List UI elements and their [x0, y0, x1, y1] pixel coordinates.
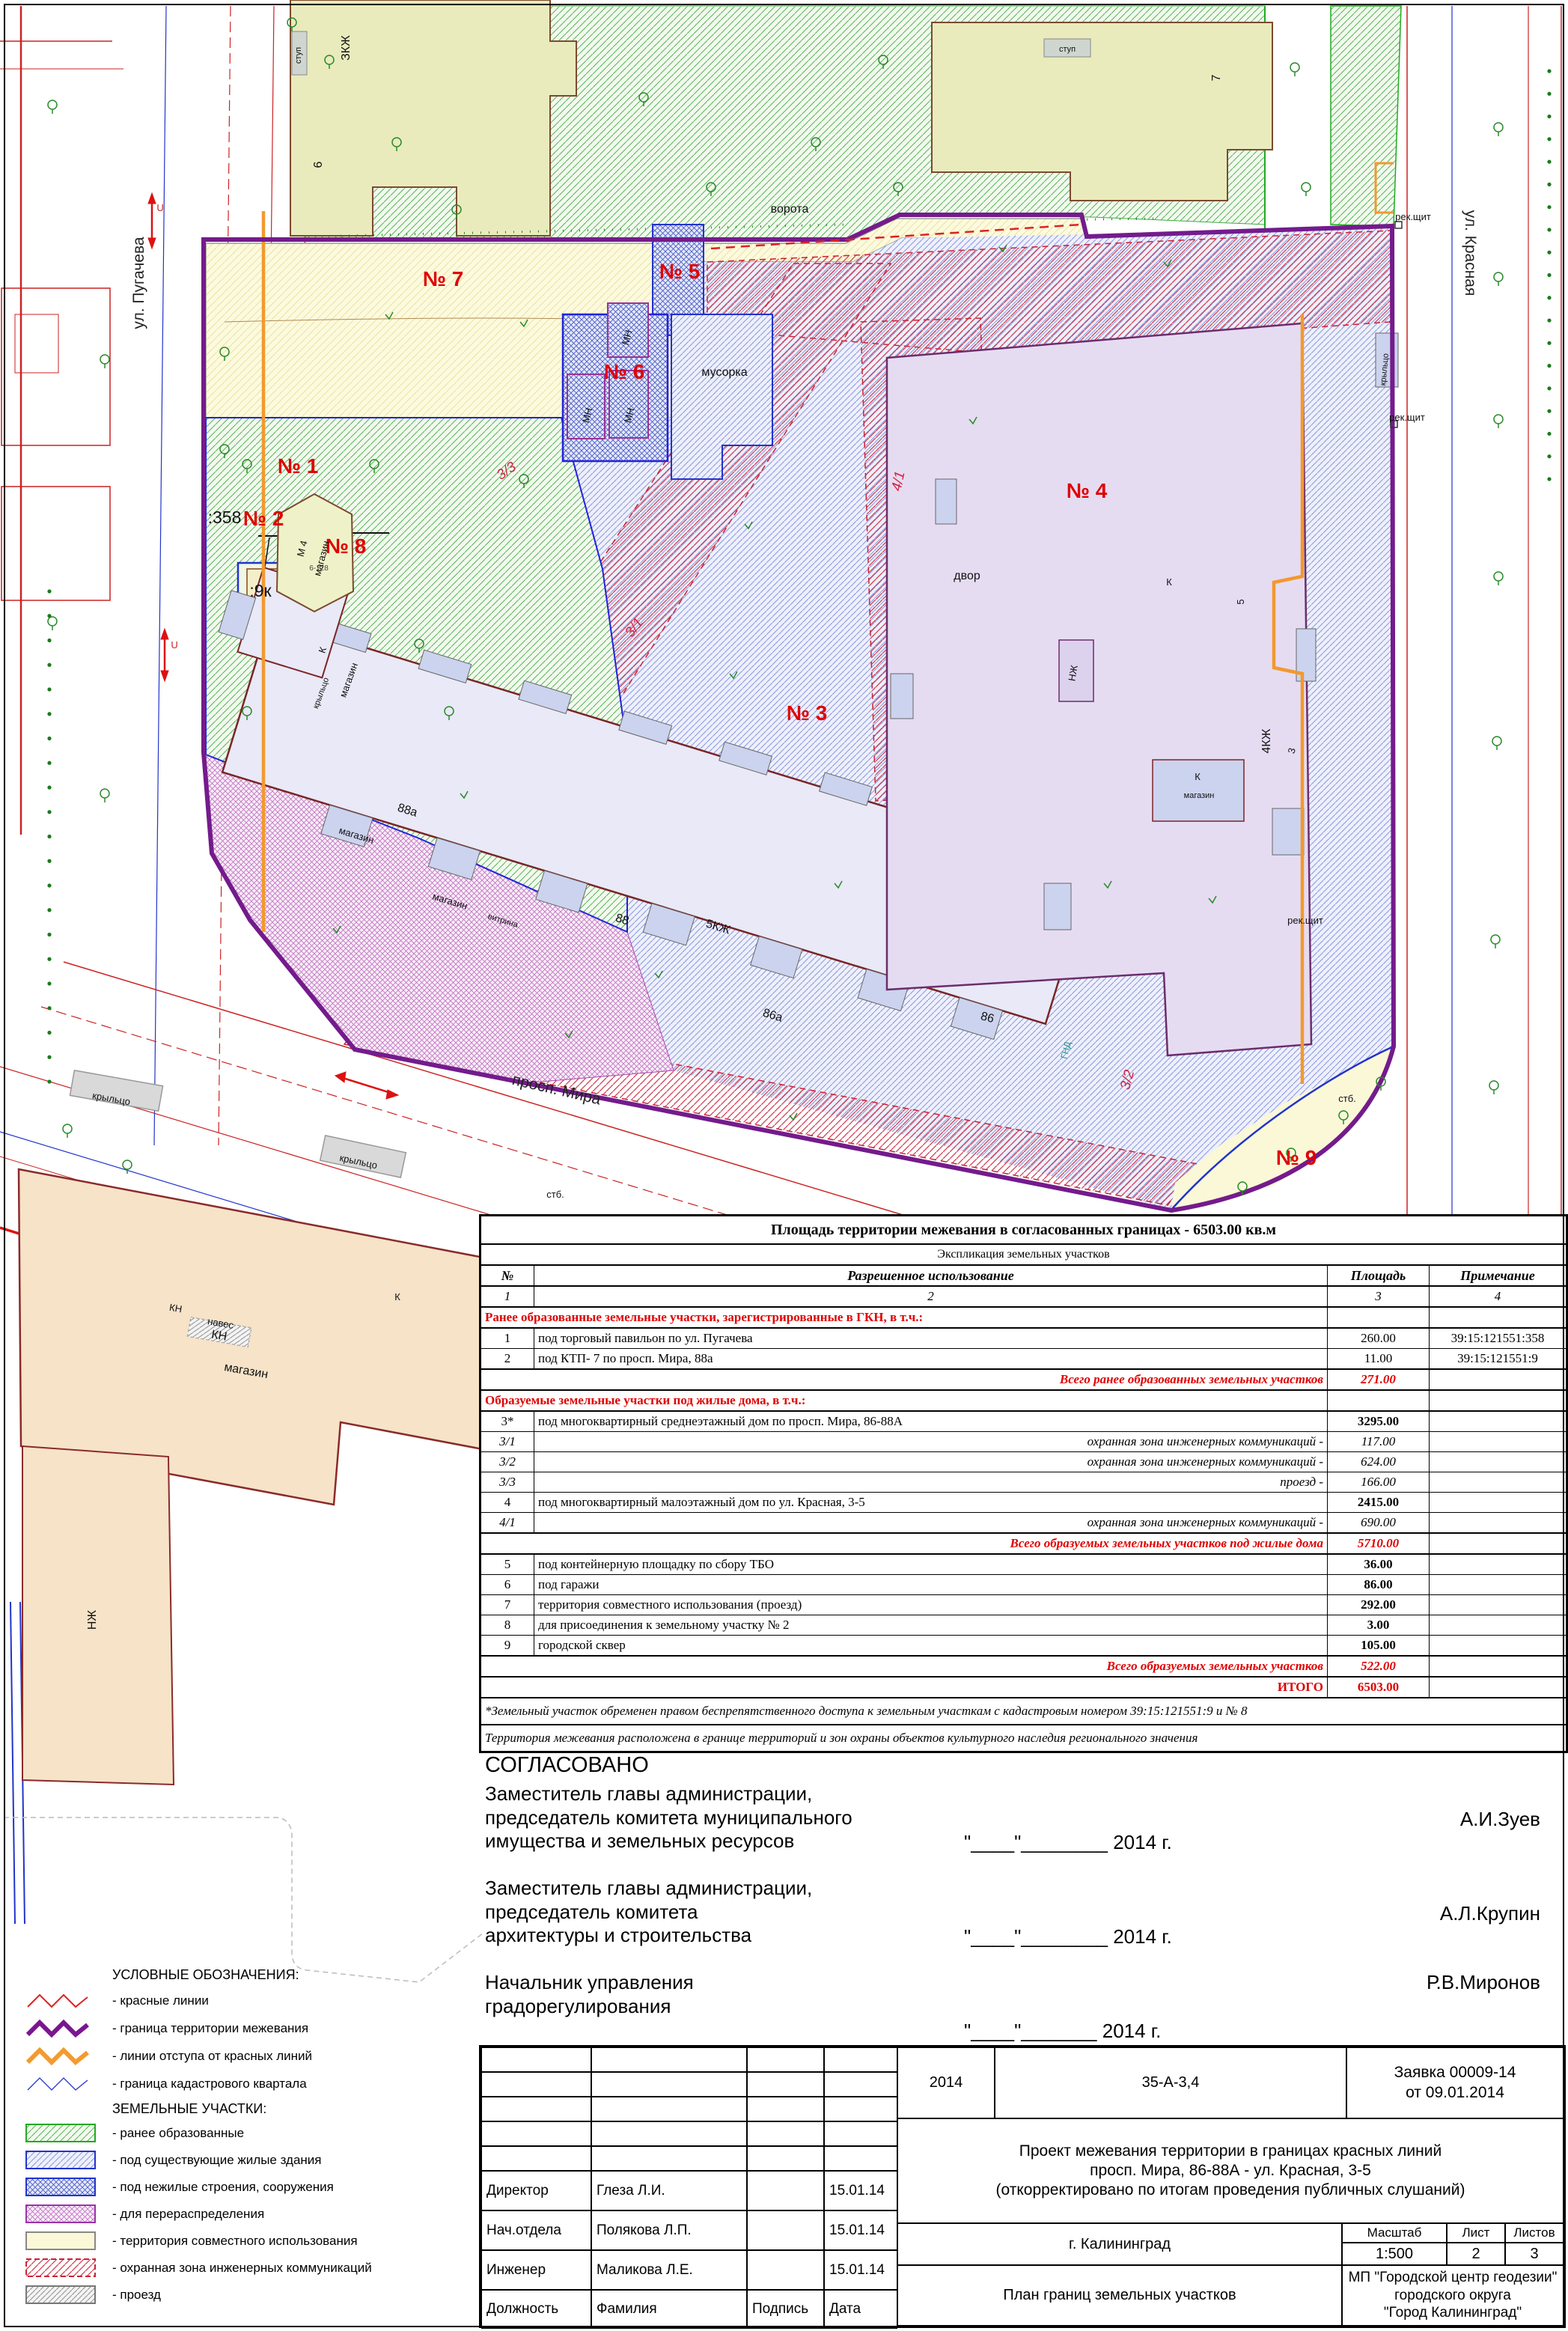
cadastral-plan-sheet: ул. Пугачевапросп. Мираул. Красная№ 1№ 2…: [0, 0, 1568, 2331]
map-label-стб: стб.: [546, 1189, 564, 1200]
map-label-рекщит: рек.щит: [1395, 211, 1431, 222]
legend-area-item-5: - охранная зона инженерных коммуникаций: [16, 2258, 477, 2278]
approval-title: Заместитель главы администрации, председ…: [485, 1782, 979, 1853]
table-row-9-16: 9городской сквер105.00: [481, 1636, 1567, 1657]
map-label-3: № 3: [787, 701, 828, 725]
map-label-4: № 4: [1067, 479, 1108, 502]
tb-request: Заявка 00009-14 от 09.01.2014: [1346, 2047, 1564, 2118]
map-label-1: № 1: [278, 454, 319, 478]
approval-item-2: Начальник управления градорегулирования"…: [485, 1971, 1563, 2043]
legend-area-item-4: - территория совместного использования: [16, 2231, 477, 2251]
tb-project: Проект межевания территории в границах к…: [897, 2118, 1564, 2223]
tb-staff-sign: [747, 2250, 824, 2290]
tb-empty-cell: [747, 2047, 824, 2072]
table-row-8-15: 8для присоединения к земельному участку …: [481, 1615, 1567, 1636]
legend-swatch-icon: [16, 2177, 105, 2197]
map-label-стб: стб.: [1338, 1093, 1356, 1104]
table-row-3/3-8: 3/3проезд -166.00: [481, 1472, 1567, 1493]
tb-empty-cell: [591, 2047, 747, 2072]
legend-line-label: - линии отступа от красных линий: [112, 2049, 312, 2064]
approval-item-0: Заместитель главы администрации, председ…: [485, 1782, 1563, 1854]
tb-empty-cell: [591, 2097, 747, 2121]
approval-name: А.Л.Крупин: [1440, 1902, 1540, 1925]
map-label-магазин: магазин: [1184, 791, 1215, 800]
map-label-рекщит: рек.щит: [1389, 412, 1425, 423]
title-block: ДиректорГлеза Л.И.15.01.14Нач.отделаПоля…: [479, 2045, 1566, 2328]
legend-zigzag-icon: [16, 2018, 105, 2039]
legend-swatch-icon: [16, 2204, 105, 2224]
legend-area-label: - ранее образованные: [112, 2126, 244, 2141]
table-row-3/1-6: 3/1охранная зона инженерных коммуникаций…: [481, 1432, 1567, 1452]
approval-date-line: "____"________ 2014 г.: [964, 1831, 1172, 1854]
legend-area-item-2: - под нежилые строения, сооружения: [16, 2177, 477, 2197]
tb-code: 35-А-3,4: [995, 2047, 1346, 2118]
tb-staff-role: Инженер: [481, 2250, 591, 2290]
map-label-358: :358: [208, 508, 242, 527]
approval-date-line: "____"_______ 2014 г.: [964, 2020, 1161, 2043]
street-krasnaya: [1407, 6, 1561, 1243]
tb-footer-1: Фамилия: [591, 2290, 747, 2329]
table-row-4-9: 4под многоквартирный малоэтажный дом по …: [481, 1493, 1567, 1513]
tb-footer-3: Дата: [824, 2290, 897, 2329]
map-label-улПугачева: ул. Пугачева: [130, 237, 147, 329]
tb-empty-cell: [824, 2072, 897, 2097]
map-label-9: № 9: [1276, 1146, 1317, 1169]
col-header-note: Примечание: [1430, 1265, 1567, 1286]
tb-staff-name: Глеза Л.И.: [591, 2171, 747, 2210]
legend-line-item-0: - красные линии: [16, 1990, 477, 2011]
tb-staff-sign: [747, 2171, 824, 2210]
map-label-2: № 2: [243, 507, 284, 530]
land-plots-table: Площадь территории межевания в согласова…: [479, 1214, 1566, 1753]
tb-empty-cell: [747, 2146, 824, 2171]
approval-section: СОГЛАСОВАНО Заместитель главы администра…: [485, 1753, 1563, 2065]
map-label-КН: КН: [168, 1302, 183, 1315]
col-header-n: №: [481, 1265, 534, 1286]
legend-line-label: - красные линии: [112, 1993, 209, 2008]
approval-name: А.И.Зуев: [1460, 1808, 1540, 1831]
map-label-К: К: [394, 1291, 400, 1302]
legend-area-item-1: - под существующие жилые здания: [16, 2150, 477, 2170]
footnote: Территория межевания расположена в грани…: [481, 1725, 1567, 1752]
table-row-total-11: Всего образуемых земельных участков под …: [481, 1533, 1567, 1554]
map-label-ступ: ступ: [1059, 45, 1076, 54]
tb-empty-cell: [481, 2047, 591, 2072]
legend-line-label: - граница территории межевания: [112, 2021, 308, 2036]
tb-empty-cell: [824, 2047, 897, 2072]
table-row-5-12: 5под контейнерную площадку по сбору ТБО3…: [481, 1554, 1567, 1575]
tb-empty-cell: [747, 2097, 824, 2121]
map-label-ступ: ступ: [294, 47, 303, 64]
tb-empty-cell: [481, 2121, 591, 2146]
table-row-7-14: 7территория совместного использования (п…: [481, 1595, 1567, 1615]
table-row-2-2: 2под КТП- 7 по просп. Мира, 88а11.0039:1…: [481, 1349, 1567, 1370]
legend-subtitle: ЗЕМЕЛЬНЫЕ УЧАСТКИ:: [112, 2101, 477, 2117]
table-row-3/2-7: 3/2охранная зона инженерных коммуникаций…: [481, 1452, 1567, 1472]
legend-area-label: - для перераспределения: [112, 2207, 264, 2222]
map-label-5: 5: [1235, 599, 1246, 604]
tb-empty-cell: [747, 2072, 824, 2097]
tb-empty-cell: [824, 2146, 897, 2171]
approval-item-1: Заместитель главы администрации, председ…: [485, 1877, 1563, 1948]
legend-line-item-3: - граница кадастрового квартала: [16, 2073, 477, 2094]
tb-empty-cell: [591, 2121, 747, 2146]
col-num-4: 4: [1430, 1286, 1567, 1307]
table-row-itog-18: ИТОГО6503.00: [481, 1677, 1567, 1698]
tb-empty-cell: [824, 2121, 897, 2146]
tb-empty-cell: [481, 2072, 591, 2097]
legend-area-item-6: - проезд: [16, 2285, 477, 2305]
tb-scale-value: 1:500: [1342, 2243, 1447, 2265]
approval-title: Заместитель главы администрации, председ…: [485, 1877, 979, 1948]
tb-sheets-label: Листов: [1505, 2223, 1564, 2243]
table-row-total-3: Всего ранее образованных земельных участ…: [481, 1369, 1567, 1390]
legend-line-label: - граница кадастрового квартала: [112, 2076, 307, 2091]
tb-city: г. Калининград: [897, 2223, 1342, 2265]
map-label-U: U: [156, 202, 163, 213]
map-label-улКрасная: ул. Красная: [1462, 210, 1479, 296]
table-row-1-1: 1под торговый павильон по ул. Пугачева26…: [481, 1328, 1567, 1349]
col-header-area: Площадь: [1328, 1265, 1430, 1286]
col-num-2: 2: [534, 1286, 1328, 1307]
building-krasnaya-3-5: [887, 323, 1311, 1055]
legend-area-item-3: - для перераспределения: [16, 2204, 477, 2224]
tb-staff-date: 15.01.14: [824, 2210, 897, 2250]
map-label-U: U: [171, 639, 177, 650]
map-label-КН: КН: [210, 1328, 228, 1343]
tb-empty-cell: [747, 2121, 824, 2146]
tb-scale-label: Масштаб: [1342, 2223, 1447, 2243]
tb-footer-2: Подпись: [747, 2290, 824, 2329]
legend-line-item-1: - граница территории межевания: [16, 2018, 477, 2039]
map-label-4КЖ: 4КЖ: [1260, 728, 1273, 753]
legend-area-label: - под нежилые строения, сооружения: [112, 2180, 334, 2195]
table-row-foot-20: Территория межевания расположена в грани…: [481, 1725, 1567, 1752]
tb-staff-name: Полякова Л.П.: [591, 2210, 747, 2250]
map-label-7: 7: [1210, 74, 1223, 81]
footnote: *Земельный участок обременен правом бесп…: [481, 1698, 1567, 1725]
legend-zigzag-icon: [16, 2046, 105, 2067]
tb-staff-role: Директор: [481, 2171, 591, 2210]
legend-swatch-icon: [16, 2123, 105, 2143]
map-label-К: К: [1166, 576, 1172, 588]
map-label-6: № 6: [604, 360, 645, 383]
table-row-3*-5: 3*под многоквартирный среднеэтажный дом …: [481, 1411, 1567, 1432]
table-title: Площадь территории межевания в согласова…: [481, 1216, 1567, 1245]
approval-name: Р.В.Миронов: [1427, 1971, 1540, 1994]
map-label-6: 6: [312, 161, 325, 168]
tb-staff-name: Маликова Л.Е.: [591, 2250, 747, 2290]
tb-sheet-label: Лист: [1447, 2223, 1505, 2243]
table-row-total-17: Всего образуемых земельных участков522.0…: [481, 1656, 1567, 1677]
col-header-use: Разрешенное использование: [534, 1265, 1328, 1286]
map-label-7: № 7: [423, 267, 464, 290]
legend-area-label: - под существующие жилые здания: [112, 2153, 322, 2168]
legend-line-item-2: - линии отступа от красных линий: [16, 2046, 477, 2067]
tb-empty-cell: [481, 2146, 591, 2171]
table-subtitle: Экспликация земельных участков: [481, 1244, 1567, 1265]
map-label-ворота: ворота: [771, 203, 809, 216]
tb-staff-date: 15.01.14: [824, 2250, 897, 2290]
map-label-8: № 8: [326, 534, 367, 558]
legend-area-label: - охранная зона инженерных коммуникаций: [112, 2261, 372, 2276]
table-row-sec-4: Образуемые земельные участки под жилые д…: [481, 1390, 1567, 1411]
table-row-sec-0: Ранее образованные земельные участки, за…: [481, 1307, 1567, 1328]
map-label-мусорка: мусорка: [701, 366, 747, 379]
legend-swatch-icon: [16, 2285, 105, 2305]
tb-staff-sign: [747, 2210, 824, 2250]
approval-heading: СОГЛАСОВАНО: [485, 1753, 1563, 1778]
legend-zigzag-icon: [16, 2073, 105, 2094]
tb-sheet-value: 2: [1447, 2243, 1505, 2265]
map-label-5: № 5: [659, 260, 701, 283]
legend-area-label: - территория совместного использования: [112, 2234, 358, 2249]
col-num-3: 3: [1328, 1286, 1430, 1307]
building-k-magazin: [1153, 760, 1244, 821]
tb-sheets-value: 3: [1505, 2243, 1564, 2265]
tb-staff-date: 15.01.14: [824, 2171, 897, 2210]
map-label-ЗКЖ: ЗКЖ: [340, 35, 353, 61]
table-row-6-13: 6под гаражи86.00: [481, 1575, 1567, 1595]
tb-year: 2014: [897, 2047, 995, 2118]
legend-swatch-icon: [16, 2258, 105, 2278]
tb-staff-role: Нач.отдела: [481, 2210, 591, 2250]
map-label-К: К: [1195, 771, 1201, 782]
legend-zigzag-icon: [16, 1990, 105, 2011]
legend-swatch-icon: [16, 2150, 105, 2170]
legend: УСЛОВНЫЕ ОБОЗНАЧЕНИЯ: - красные линии - …: [16, 1967, 477, 2312]
legend-swatch-icon: [16, 2231, 105, 2251]
legend-area-item-0: - ранее образованные: [16, 2123, 477, 2143]
approval-title: Начальник управления градорегулирования: [485, 1971, 979, 2018]
col-num-1: 1: [481, 1286, 534, 1307]
tb-doc-title: План границ земельных участков: [897, 2265, 1342, 2326]
tb-empty-cell: [481, 2097, 591, 2121]
table-row-foot-19: *Земельный участок обременен правом бесп…: [481, 1698, 1567, 1725]
legend-title: УСЛОВНЫЕ ОБОЗНАЧЕНИЯ:: [112, 1967, 477, 1983]
table-row-4/1-10: 4/1охранная зона инженерных коммуникаций…: [481, 1513, 1567, 1534]
map-label-рекщит: рек.щит: [1287, 915, 1323, 926]
legend-area-label: - проезд: [112, 2288, 161, 2303]
tb-empty-cell: [591, 2146, 747, 2171]
map-label-9к: :9к: [249, 581, 272, 600]
map-label-НЖ: НЖ: [86, 1610, 99, 1630]
tb-org: МП "Городской центр геодезии" городского…: [1342, 2265, 1564, 2326]
tb-empty-cell: [824, 2097, 897, 2121]
tb-empty-cell: [591, 2072, 747, 2097]
map-label-двор: двор: [954, 570, 980, 582]
tb-footer-0: Должность: [481, 2290, 591, 2329]
approval-date-line: "____"________ 2014 г.: [964, 1925, 1172, 1948]
